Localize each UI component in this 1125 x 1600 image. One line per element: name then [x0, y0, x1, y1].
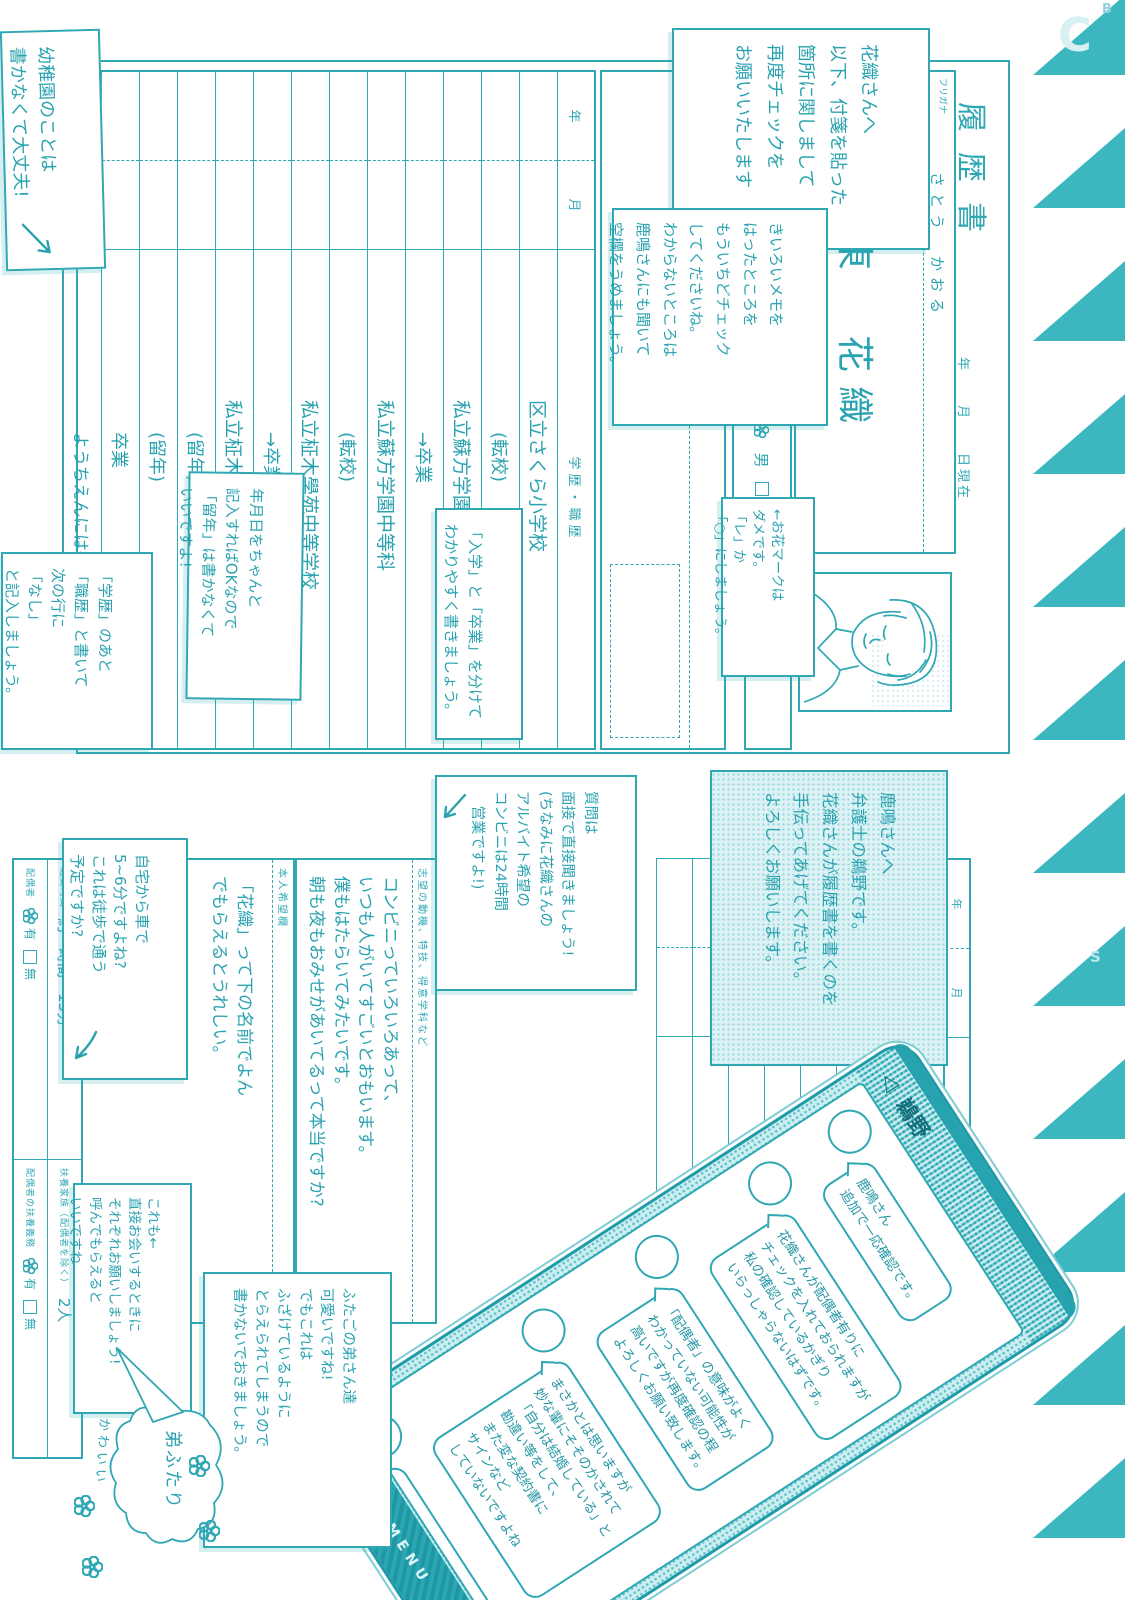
yes-label: 有: [22, 928, 39, 940]
year-header: 年: [945, 860, 969, 949]
avatar: [627, 1226, 688, 1287]
flower-doodle-icon: [199, 1520, 220, 1542]
avatar: [819, 1101, 880, 1162]
table-row: 私立蘇方学園中等科: [368, 72, 406, 748]
no-label: 無: [22, 1318, 39, 1330]
id-photo: [798, 572, 952, 712]
row-text: 区立さくら小学校: [520, 250, 557, 748]
resume-title: 履歴書: [952, 102, 996, 252]
note-nyugaku: 「入学」と「卒業」を分けて わかりやすく書きましょう。: [435, 508, 523, 740]
spouse-duty-label: 配偶者の扶養義務: [24, 1168, 37, 1248]
wish-text: 「花織」って下の名前でよん でもらえるとうれしい。: [197, 860, 272, 1322]
gender-checkbox: [755, 482, 769, 496]
flower-doodle-icon: [189, 1455, 210, 1477]
note-text: 「学歴」のあと 「職歴」と書いて 次の行に 「なし」 と記入しましょう。: [3, 568, 114, 702]
dependents-value: 2人: [54, 1298, 75, 1323]
note-text: 年月日をちゃんと 記入すればOKなので 「留年」は書かなくて いいですよ!: [176, 487, 265, 637]
note-gakureki: 「学歴」のあと 「職歴」と書いて 次の行に 「なし」 と記入しましょう。: [1, 552, 153, 750]
year-header: 年: [558, 72, 594, 161]
note-to-kanari: 鹿鳴さんへ 弁護士の鵜野です。 花織さんが履歴書を書くのを 手伝ってあげてくださ…: [710, 770, 948, 1066]
flower-doodle-icon: [82, 1556, 103, 1578]
cloud-text: 弟ふたり: [161, 1430, 187, 1510]
address-dotted-box: [610, 564, 680, 738]
arrow-up-right-icon: [17, 218, 60, 261]
month-header: 月: [945, 949, 969, 1038]
furigana-value: さとう かおる: [927, 172, 948, 319]
note-text: 「入学」と「卒業」を分けて わかりやすく書きましょう。: [443, 524, 484, 719]
note-text: 鹿鳴さんへ 弁護士の鵜野です。 花織さんが履歴書を書くのを 手伝ってあげてくださ…: [763, 792, 898, 1007]
note-text: 質問は 面接で直接聞きましょう! (ちなみに花織さんの アルバイト希望の コンビ…: [469, 791, 597, 956]
note-text: ふたごの弟さん達 可愛いですね! でもこれは ふざけているように とらえられてし…: [232, 1288, 357, 1461]
rotated-page: 履歴書 年 月 日現在 フリガナ さとう かおる 氏 名 佐東 花織: [0, 0, 1125, 1600]
note-text: 幼稚園のことは 書かなくて大丈夫!: [7, 46, 59, 198]
motivation-box: 志望の動機、特技、得意学科など コンビニっていろいろあって、 いつも人がいてすご…: [293, 858, 437, 1324]
history-header: 学歴・職歴: [558, 250, 594, 748]
row-text: 私立蘇方学園中等科: [368, 250, 405, 748]
arrow-down-right-icon: [439, 789, 469, 823]
note-yellow-memo: きいろいメモを はったところを もういちどチェック してくださいね。 わからない…: [612, 208, 828, 426]
note-kindergarten: 幼稚園のことは 書かなくて大丈夫!: [0, 29, 106, 272]
note-ryunen: 年月日をちゃんと 記入すればOKなので 「留年」は書かなくて いいですよ!: [185, 471, 304, 701]
motivation-label: 志望の動機、特技、得意学科など: [412, 860, 435, 1322]
table-header-row: 年 月 学歴・職歴: [558, 72, 594, 748]
table-row: 区立さくら小学校: [520, 72, 558, 748]
spouse-label: 配偶者: [24, 868, 37, 898]
note-text: ←お花マークは ダメです。 「レ」か 「○」にしましょう。: [712, 509, 785, 641]
furigana-label: フリガナ: [937, 78, 950, 114]
arrow-down-right-icon: [70, 1028, 100, 1064]
wish-label: 本人希望欄: [272, 860, 295, 1322]
gender-male-label: 男: [752, 452, 773, 467]
duty-checkbox: [24, 1300, 38, 1314]
avatar: [740, 1153, 801, 1214]
note-flower-mark: ←お花マークは ダメです。 「レ」か 「○」にしましょう。: [721, 497, 815, 677]
back-icon: ◁: [876, 1068, 905, 1095]
row-text: (転校): [330, 250, 367, 748]
note-shitsumon: 質問は 面接で直接聞きましょう! (ちなみに花織さんの アルバイト希望の コンビ…: [435, 775, 637, 991]
manga-resume-page: C B S 履歴書 年 月 日現在 フリガナ さとう かおる 氏 名 佐東 花織: [0, 0, 1125, 1600]
portrait-sketch: [804, 574, 950, 706]
spouse-checkbox: [24, 950, 38, 964]
note-text: きいろいメモを はったところを もういちどチェック してくださいね。 わからない…: [607, 222, 785, 371]
doodle-cloud: 弟ふたり かわいい: [35, 1330, 245, 1590]
cloud-icon: [35, 1330, 245, 1590]
month-header: 月: [558, 161, 594, 250]
flower-mark-icon: [23, 1258, 38, 1274]
note-jitaku: 自宅から車で 5~6分ですよね? これは徒歩で通う 予定ですか?: [62, 838, 188, 1080]
no-label: 無: [22, 968, 39, 980]
note-text: 花織さんへ 以下、付箋を貼った 箇所に関しまして 再度チェックを お願いいたしま…: [733, 44, 880, 206]
motivation-text: コンビニっていろいろあって、 いつも人がいてすごいとおもいます。 僕もはたらいて…: [293, 860, 412, 1322]
avatar: [514, 1300, 575, 1361]
note-text: 自宅から車で 5~6分ですよね? これは徒歩で通う 予定ですか?: [68, 854, 151, 974]
flower-mark-icon: [23, 908, 38, 924]
resume-date-line: 年 月 日現在: [955, 357, 974, 501]
spouse-cell: 配偶者 有 無: [14, 860, 47, 1160]
yes-label: 有: [22, 1278, 39, 1290]
table-row: (転校): [330, 72, 368, 748]
flower-doodle-icon: [74, 1495, 95, 1517]
